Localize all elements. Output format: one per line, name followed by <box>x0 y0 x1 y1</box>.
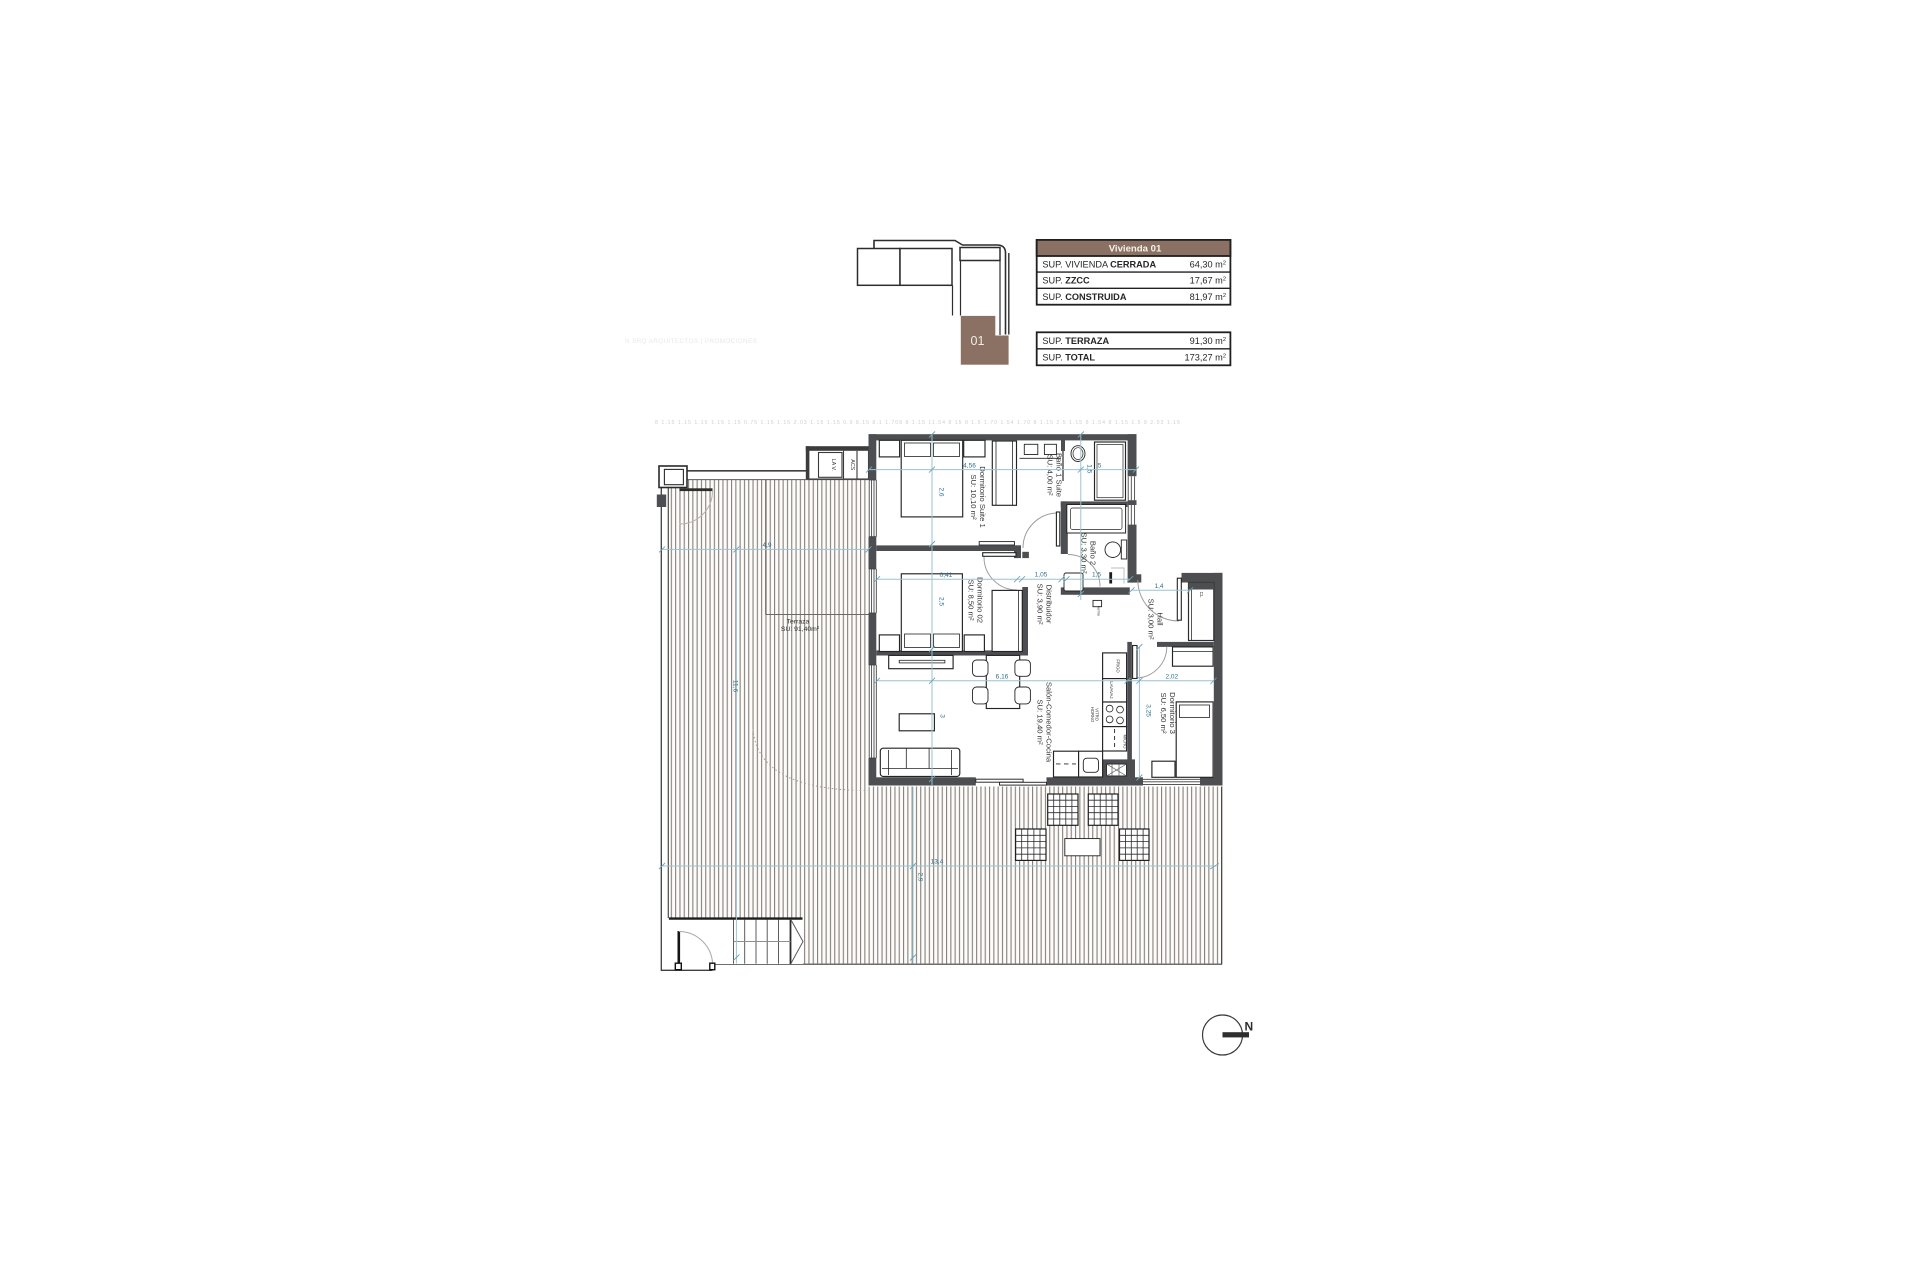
svg-text:VITROHORNO: VITROHORNO <box>1090 707 1100 723</box>
svg-text:termo: termo <box>1097 606 1102 616</box>
svg-text:1,5: 1,5 <box>1092 572 1101 579</box>
svg-text:SUP. TOTAL: SUP. TOTAL <box>1042 352 1095 362</box>
svg-text:Dormitorio 02SU: 8,50 m²: Dormitorio 02SU: 8,50 m² <box>967 577 985 623</box>
svg-text:4,56: 4,56 <box>963 462 976 469</box>
svg-text:64,30 m2: 64,30 m2 <box>1190 259 1226 269</box>
svg-text:8 1.15 1.15 1.15 1.15 1.15 0.7: 8 1.15 1.15 1.15 1.15 1.15 0.75 1.15 1.1… <box>655 420 1181 426</box>
svg-text:1,5: 1,5 <box>1086 464 1093 473</box>
svg-text:ACS: ACS <box>849 459 855 470</box>
svg-text:Baño 1 SuiteSU: 4,00 m²: Baño 1 SuiteSU: 4,00 m² <box>1046 453 1064 497</box>
svg-text:LAVAVAJ.: LAVAVAJ. <box>1109 681 1114 699</box>
svg-text:SUP. TERRAZA: SUP. TERRAZA <box>1042 336 1109 346</box>
svg-text:N: N <box>1245 1020 1254 1034</box>
svg-text:SUP. VIVIENDA CERRADA: SUP. VIVIENDA CERRADA <box>1042 259 1156 269</box>
svg-text:2,9: 2,9 <box>917 872 924 881</box>
svg-text:FRIGO: FRIGO <box>1116 659 1121 673</box>
svg-text:Dormitorio 3SU: 6,50 m²: Dormitorio 3SU: 6,50 m² <box>1159 692 1177 734</box>
svg-text:3: 3 <box>939 714 946 718</box>
svg-text:Dormitorio Suite 1SU: 10,10 m²: Dormitorio Suite 1SU: 10,10 m² <box>969 466 987 528</box>
svg-text:173,27 m2: 173,27 m2 <box>1185 352 1226 362</box>
svg-text:6,16: 6,16 <box>996 673 1009 680</box>
svg-text:SUP. CONSTRUIDA: SUP. CONSTRUIDA <box>1042 292 1126 302</box>
svg-text:5: 5 <box>1098 462 1102 469</box>
svg-text:Vivienda 01: Vivienda 01 <box>1109 244 1162 255</box>
svg-text:3,25: 3,25 <box>1145 704 1152 717</box>
svg-text:11,6: 11,6 <box>732 680 739 693</box>
svg-text:DistribuidorSU: 3,90 m²: DistribuidorSU: 3,90 m² <box>1036 583 1054 624</box>
svg-text:SU: 91,40m²: SU: 91,40m² <box>781 626 820 633</box>
svg-text:01: 01 <box>971 334 985 348</box>
svg-text:SUP. ZZCC: SUP. ZZCC <box>1042 276 1090 286</box>
svg-text:2,5: 2,5 <box>938 597 945 606</box>
svg-text:LA V.: LA V. <box>830 459 836 471</box>
svg-text:17,67 m2: 17,67 m2 <box>1190 276 1226 286</box>
svg-text:13,4: 13,4 <box>931 859 944 866</box>
svg-text:Terraza: Terraza <box>787 619 810 626</box>
svg-text:91,30 m2: 91,30 m2 <box>1190 336 1226 346</box>
svg-text:2,02: 2,02 <box>1165 673 1178 680</box>
svg-text:N SRQ ARQUITECTOS | PROMOCION: N SRQ ARQUITECTOS | PROMOCIONES <box>625 338 757 345</box>
svg-text:CL: CL <box>1199 592 1204 598</box>
svg-text:0,41: 0,41 <box>940 572 953 579</box>
svg-text:1,4: 1,4 <box>1154 583 1163 590</box>
svg-text:1,05: 1,05 <box>1035 571 1048 578</box>
svg-text:MICRO: MICRO <box>1122 735 1127 750</box>
svg-text:81,97 m2: 81,97 m2 <box>1190 292 1226 302</box>
svg-text:2,6: 2,6 <box>938 487 945 496</box>
svg-text:4,9: 4,9 <box>762 542 771 549</box>
